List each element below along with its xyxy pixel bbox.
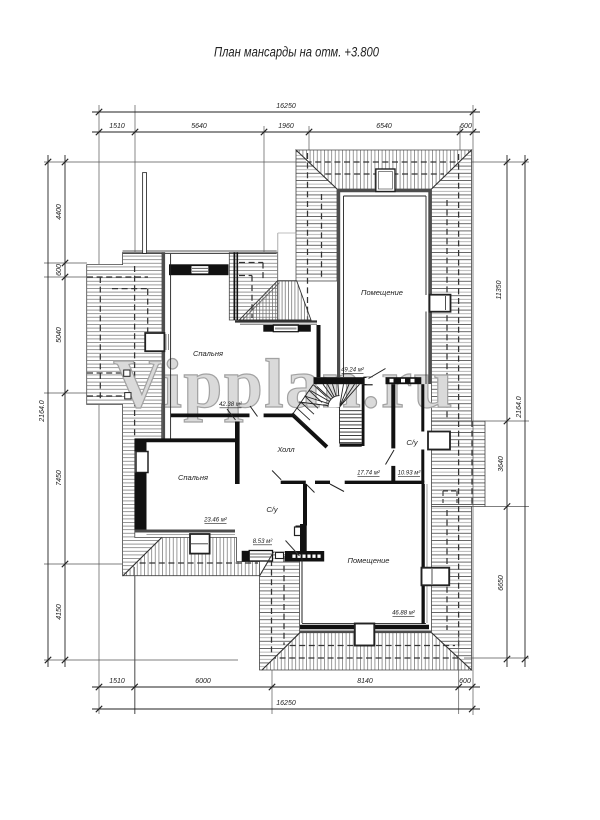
svg-text:5040: 5040 [56, 327, 63, 343]
svg-text:8.53 м²: 8.53 м² [253, 539, 273, 545]
svg-text:6540: 6540 [376, 123, 392, 130]
svg-text:С/у: С/у [406, 438, 419, 447]
svg-text:1510: 1510 [109, 123, 125, 130]
svg-text:Помещение: Помещение [361, 288, 403, 297]
svg-text:4400: 4400 [56, 204, 63, 220]
svg-text:17.74 м²: 17.74 м² [357, 471, 381, 477]
svg-text:6000: 6000 [195, 678, 211, 685]
svg-text:8140: 8140 [357, 678, 373, 685]
svg-text:49.24 м²: 49.24 м² [341, 368, 365, 374]
svg-text:Спальня: Спальня [178, 473, 208, 482]
svg-text:3640: 3640 [498, 456, 505, 472]
svg-text:600: 600 [459, 678, 471, 685]
svg-text:600: 600 [56, 264, 63, 276]
svg-text:Холл: Холл [276, 445, 295, 454]
svg-text:Спальня: Спальня [193, 349, 223, 358]
svg-text:11350: 11350 [496, 280, 503, 299]
svg-text:6650: 6650 [498, 575, 505, 591]
svg-text:5640: 5640 [191, 123, 207, 130]
svg-text:10.93 м²: 10.93 м² [398, 471, 422, 477]
svg-text:С/у: С/у [266, 505, 279, 514]
svg-text:23.46 м²: 23.46 м² [203, 518, 228, 524]
svg-text:Помещение: Помещение [348, 556, 390, 565]
svg-text:600: 600 [460, 123, 472, 130]
svg-text:42.38 м²: 42.38 м² [219, 402, 243, 408]
svg-text:1510: 1510 [109, 678, 125, 685]
svg-text:2164.0: 2164.0 [39, 400, 46, 423]
svg-text:1960: 1960 [278, 123, 294, 130]
svg-text:План мансарды на отм. +3.800: План мансарды на отм. +3.800 [214, 45, 379, 60]
svg-text:2164.0: 2164.0 [516, 396, 523, 419]
svg-text:4150: 4150 [56, 604, 63, 620]
svg-text:16250: 16250 [276, 700, 296, 707]
svg-text:7450: 7450 [56, 470, 63, 486]
svg-text:46.88 м²: 46.88 м² [392, 611, 416, 617]
svg-text:16250: 16250 [276, 103, 296, 110]
